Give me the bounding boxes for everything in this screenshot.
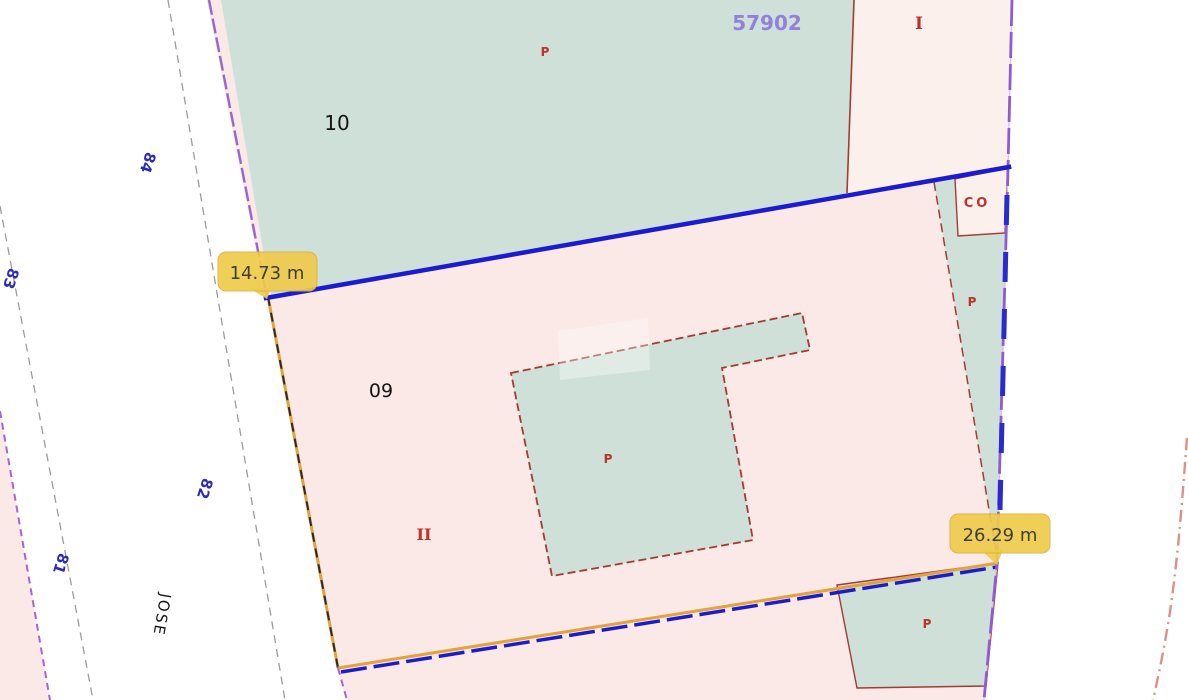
bottom-patio-marker: P — [923, 617, 932, 631]
street-number-83: 83 — [0, 266, 23, 291]
top-right-storeys-label: I — [915, 14, 923, 34]
co-annex-label: CO — [964, 196, 991, 211]
parcel-09-number: 09 — [369, 380, 393, 402]
parcel-09-storeys-label: II — [417, 525, 432, 544]
building-courtyard-marker: P — [604, 452, 613, 466]
measurement-value-right: 26.29 m — [963, 525, 1038, 546]
street-number-82: 82 — [193, 476, 217, 501]
cadastral-map-canvas[interactable]: 10 P 57902 I CO P 09 II P P 84 83 82 81 … — [0, 0, 1188, 700]
far-right-boundary-curve — [1153, 438, 1187, 700]
street-number-84: 84 — [136, 150, 160, 175]
measurement-value-top: 14.73 m — [230, 263, 305, 284]
bottom-patio-polygon[interactable] — [837, 563, 998, 688]
right-strip-marker: P — [968, 295, 977, 309]
parcel-10-number: 10 — [324, 111, 349, 135]
parcel-10-construction-marker: P — [541, 45, 550, 59]
street-name-label: JOSE — [149, 591, 174, 638]
parcel-top-right-polygon[interactable] — [847, 0, 1012, 193]
cadastral-map-viewport[interactable]: 10 P 57902 I CO P 09 II P P 84 83 82 81 … — [0, 0, 1188, 700]
street-number-81: 81 — [49, 551, 73, 576]
cadastral-reference-label: 57902 — [732, 11, 802, 35]
